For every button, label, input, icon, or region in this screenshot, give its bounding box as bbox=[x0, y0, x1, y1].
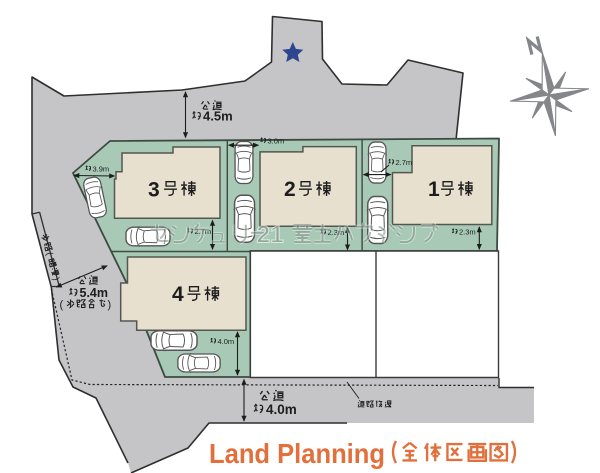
svg-text:3.9m: 3.9m bbox=[93, 165, 110, 174]
svg-text:1: 1 bbox=[428, 178, 440, 201]
svg-text:4.0m: 4.0m bbox=[266, 402, 297, 417]
svg-text:4: 4 bbox=[172, 283, 184, 306]
svg-text:3.0m: 3.0m bbox=[268, 137, 285, 146]
svg-text:(: ( bbox=[60, 299, 64, 311]
svg-text:21: 21 bbox=[257, 222, 284, 249]
svg-text:4.0m: 4.0m bbox=[218, 337, 235, 346]
svg-text:): ) bbox=[108, 299, 112, 311]
svg-text:3: 3 bbox=[148, 179, 160, 202]
svg-text:5.4m: 5.4m bbox=[80, 286, 109, 300]
svg-text:2: 2 bbox=[284, 178, 296, 201]
svg-text:2.7m: 2.7m bbox=[396, 158, 413, 167]
svg-text:4.5m: 4.5m bbox=[203, 108, 233, 123]
svg-text:2.3m: 2.3m bbox=[459, 228, 476, 237]
svg-text:Land Planning: Land Planning bbox=[209, 438, 385, 469]
